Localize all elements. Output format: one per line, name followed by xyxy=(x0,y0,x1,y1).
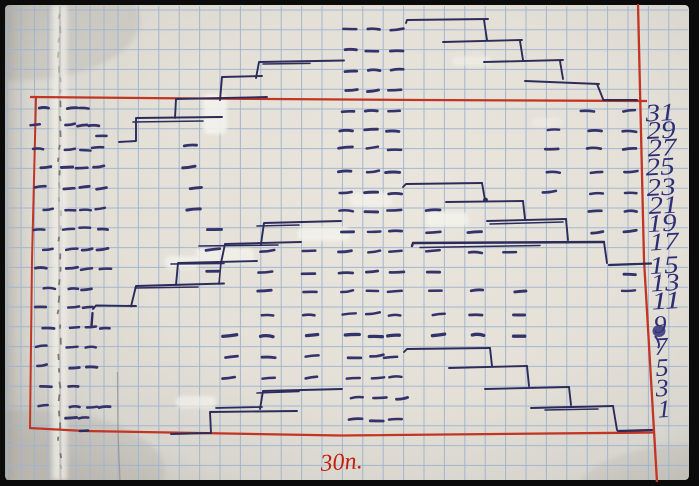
svg-text:1: 1 xyxy=(657,396,671,424)
svg-text:30п.: 30п. xyxy=(319,448,364,477)
